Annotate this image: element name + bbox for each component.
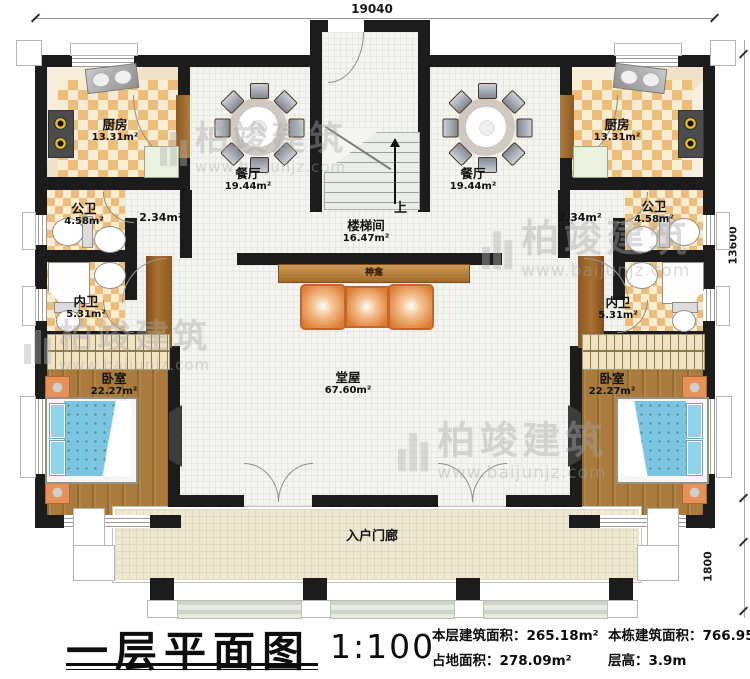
- corner-marker: [647, 508, 679, 546]
- room-label-dining-left: 餐厅 19.44m²: [225, 167, 271, 192]
- column-symbol: [303, 578, 327, 600]
- watermark: 柏竣建筑 www.baijunjz.com: [482, 220, 691, 280]
- burner: [684, 137, 697, 150]
- chair-symbol: [443, 119, 459, 138]
- chair-symbol: [250, 83, 269, 99]
- nightstand-symbol: [682, 481, 707, 504]
- room-label-privbath-left: 内卫 5.31m²: [66, 295, 105, 320]
- window-sill: [22, 212, 36, 250]
- burner: [54, 117, 67, 130]
- wall-segment: [310, 20, 322, 212]
- porch-side-right: [637, 545, 679, 581]
- tv-symbol: [169, 405, 182, 467]
- window-sill: [716, 212, 730, 250]
- porch-side-left: [73, 545, 115, 581]
- column-base: [147, 600, 179, 618]
- sink-basin: [113, 69, 133, 86]
- wall-segment: [178, 67, 190, 95]
- dimension-top-line: [35, 18, 715, 19]
- watermark-logo-icon: [24, 330, 51, 364]
- room-label-stairwell: 楼梯间 16.47m²: [343, 219, 389, 244]
- room-label-dining-right: 餐厅 19.44m²: [450, 167, 496, 192]
- wall-segment: [560, 67, 572, 95]
- room-label-kitchen-left: 厨房 13.31m²: [92, 118, 138, 143]
- nightstand-symbol: [682, 376, 707, 399]
- wall-segment: [35, 250, 137, 262]
- steps-symbol: [483, 600, 608, 619]
- pillow: [50, 404, 65, 438]
- room-label-pubbath-left: 公卫 4.58m²: [64, 202, 103, 227]
- chair-symbol: [517, 119, 533, 138]
- window: [35, 289, 47, 321]
- watermark-brand: 柏竣建筑: [437, 422, 607, 460]
- toilet-symbol: [672, 310, 696, 332]
- window-sill: [70, 43, 138, 56]
- watermark: 柏竣建筑 www.baijunjz.com: [398, 422, 607, 482]
- wall-segment: [35, 177, 190, 190]
- window-sill: [716, 286, 730, 326]
- watermark-logo-icon: [398, 433, 428, 471]
- shrine-label: 神龛: [365, 268, 383, 278]
- armchair-symbol: [300, 284, 346, 330]
- watermark-url: www.baijunjz.com: [521, 260, 691, 280]
- armchair-symbol: [388, 284, 434, 330]
- fridge-symbol: [573, 146, 608, 178]
- tea-table-symbol: [345, 286, 389, 328]
- shrine-shelf: 神龛: [278, 264, 470, 283]
- column-symbol: [456, 578, 480, 600]
- dining-table-center: [479, 120, 495, 136]
- stove-symbol: [678, 110, 704, 158]
- wall-segment: [560, 158, 572, 190]
- window: [35, 215, 47, 245]
- wardrobe-rod: [583, 350, 704, 352]
- stat-storey-height: 层高：3.9m: [608, 649, 686, 669]
- room-label-bedroom-left: 卧室 22.27m²: [91, 372, 137, 397]
- stove-symbol: [48, 110, 74, 158]
- room-label-privbath-right: 内卫 5.31m²: [598, 296, 637, 321]
- dimension-right-line: [744, 40, 745, 618]
- pillow: [687, 441, 702, 475]
- steps-symbol: [177, 600, 302, 619]
- window: [703, 289, 715, 321]
- dimension-tick: [710, 13, 719, 22]
- watermark-url: www.baijunjz.com: [437, 462, 607, 482]
- window: [703, 215, 715, 245]
- stat-ground-area: 占地面积：278.09m²: [432, 649, 572, 669]
- stairs-arrowhead: [390, 138, 400, 147]
- chair-symbol: [478, 83, 497, 99]
- watermark-brand: 柏竣建筑: [521, 220, 691, 258]
- stairs-arrow: [394, 146, 396, 204]
- watermark-brand: 柏竣建筑: [59, 320, 211, 354]
- window-sill: [614, 43, 682, 56]
- watermark-logo-icon: [160, 132, 187, 166]
- corner-marker: [710, 40, 736, 66]
- room-label-corridor-left: 2.34m²: [139, 212, 182, 224]
- room-label-kitchen-right: 厨房 13.31m²: [594, 118, 640, 143]
- room-label-main-hall: 堂屋 67.60m²: [325, 371, 371, 396]
- blanket-fold: [91, 401, 131, 476]
- bed-symbol: [616, 397, 709, 484]
- sink-symbol: [94, 226, 126, 253]
- watermark-brand: 柏竣建筑: [195, 122, 347, 156]
- wall-segment: [560, 177, 715, 190]
- room-label-porch: 入户门廊: [346, 530, 398, 545]
- stat-total-area: 本栋建筑面积：766.95m²: [608, 624, 750, 644]
- column-base: [606, 600, 638, 618]
- room-label-pubbath-right: 公卫 4.58m²: [634, 200, 673, 225]
- watermark-logo-icon: [482, 231, 512, 269]
- blanket-fold: [619, 401, 659, 476]
- nightstand-symbol: [45, 481, 70, 504]
- sink-symbol: [94, 262, 126, 289]
- column-symbol: [609, 578, 633, 600]
- window-sill: [716, 396, 732, 478]
- title-underline: [66, 669, 318, 670]
- stairs-up-label: 上: [394, 197, 407, 216]
- wardrobe-symbol: [582, 334, 705, 370]
- dimension-steps-label: 1800: [702, 549, 715, 585]
- burner: [54, 137, 67, 150]
- dimension-top-label: 19040: [332, 2, 412, 16]
- wall-segment: [312, 495, 438, 507]
- column-base: [453, 600, 485, 618]
- sink-basin: [619, 69, 639, 86]
- sink-basin: [91, 71, 111, 88]
- title-underline: [66, 663, 318, 666]
- stat-floor-area: 本层建筑面积：265.18m²: [432, 624, 599, 644]
- column-symbol: [150, 578, 174, 600]
- floor-plan-canvas: 19040 13600 600 1800: [0, 0, 750, 679]
- window-sill: [20, 396, 36, 478]
- corner-marker: [73, 508, 105, 546]
- steps-symbol: [330, 600, 455, 619]
- room-label-corridor-right: 2.34m²: [558, 212, 601, 224]
- burner: [684, 117, 697, 130]
- bed-symbol: [45, 397, 138, 484]
- nightstand-symbol: [45, 376, 70, 399]
- corner-marker: [16, 40, 42, 66]
- pillow: [687, 404, 702, 438]
- scale-label: 1:100: [330, 627, 435, 666]
- watermark: 柏竣建筑 www.baijunjz.com: [24, 320, 211, 374]
- wall-segment: [168, 495, 244, 507]
- pillow: [50, 441, 65, 475]
- column-base: [300, 600, 332, 618]
- sink-basin: [641, 71, 661, 88]
- door-opening: [328, 20, 364, 32]
- room-label-bedroom-right: 卧室 22.27m²: [589, 372, 635, 397]
- wall-segment: [506, 495, 582, 507]
